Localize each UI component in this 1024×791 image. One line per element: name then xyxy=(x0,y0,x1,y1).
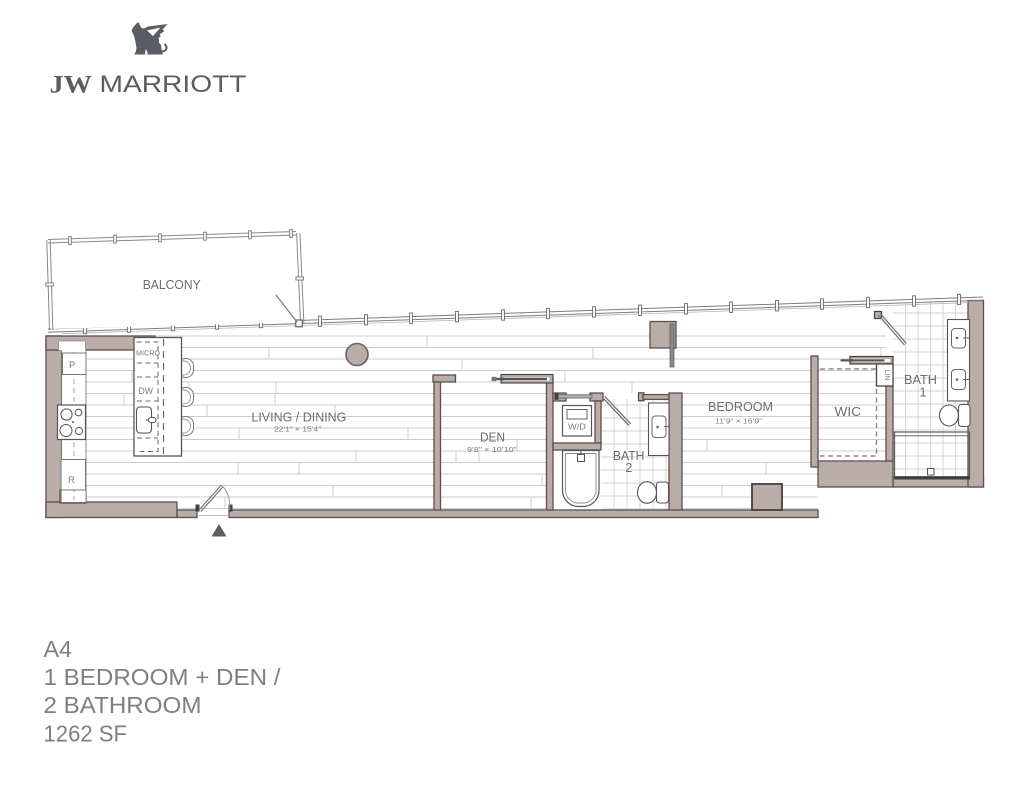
svg-text:DEN: DEN xyxy=(480,430,505,444)
svg-text:9’8” × 10’10”: 9’8” × 10’10” xyxy=(467,445,517,454)
svg-text:LIN: LIN xyxy=(883,370,890,381)
svg-text:1: 1 xyxy=(920,386,927,400)
svg-text:WIC: WIC xyxy=(835,405,862,419)
svg-text:22’1” × 15’4”: 22’1” × 15’4” xyxy=(274,425,322,434)
svg-text:W/D: W/D xyxy=(568,422,586,432)
svg-text:LIVING / DINING: LIVING / DINING xyxy=(251,411,346,425)
svg-text:MICRO: MICRO xyxy=(136,349,160,358)
svg-text:JW: JW xyxy=(50,72,93,99)
svg-text:2 BATHROOM: 2 BATHROOM xyxy=(44,692,202,718)
svg-text:1262 SF: 1262 SF xyxy=(44,720,128,746)
svg-text:R: R xyxy=(68,475,75,486)
svg-text:11’9” × 16’9”: 11’9” × 16’9” xyxy=(715,417,763,426)
svg-text:2: 2 xyxy=(625,461,632,475)
svg-text:BALCONY: BALCONY xyxy=(143,278,202,292)
svg-text:P: P xyxy=(69,360,75,371)
svg-text:A4: A4 xyxy=(44,636,73,662)
svg-text:1 BEDROOM + DEN /: 1 BEDROOM + DEN / xyxy=(44,664,282,690)
svg-text:BEDROOM: BEDROOM xyxy=(708,400,773,414)
svg-text:MARRIOTT: MARRIOTT xyxy=(100,71,247,98)
svg-text:DW: DW xyxy=(139,386,154,396)
